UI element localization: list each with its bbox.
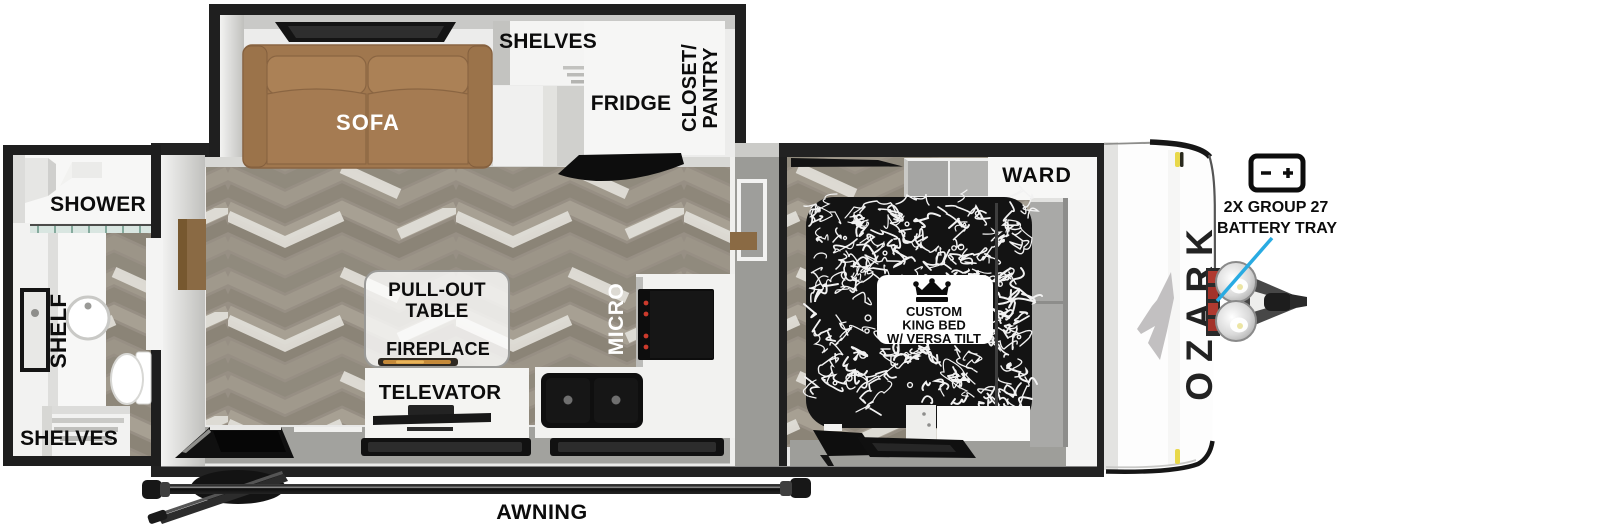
svg-text:SHELVES: SHELVES <box>20 427 118 450</box>
svg-text:WARD: WARD <box>1002 163 1072 187</box>
svg-text:FIREPLACE: FIREPLACE <box>386 339 490 359</box>
svg-text:MICRO: MICRO <box>605 283 628 356</box>
svg-text:CLOSET/: CLOSET/ <box>679 44 701 132</box>
svg-text:PANTRY: PANTRY <box>700 47 722 129</box>
svg-text:TABLE: TABLE <box>406 301 469 322</box>
svg-text:SOFA: SOFA <box>336 110 400 135</box>
svg-text:W/ VERSA TILT: W/ VERSA TILT <box>887 331 981 346</box>
svg-text:2X GROUP 27: 2X GROUP 27 <box>1224 199 1329 216</box>
svg-text:PULL-OUT: PULL-OUT <box>388 280 486 301</box>
svg-text:BATTERY TRAY: BATTERY TRAY <box>1217 220 1337 237</box>
svg-text:SHELVES: SHELVES <box>499 30 597 53</box>
svg-text:TELEVATOR: TELEVATOR <box>379 381 502 404</box>
svg-text:FRIDGE: FRIDGE <box>591 92 672 115</box>
svg-text:SHOWER: SHOWER <box>50 193 146 216</box>
svg-text:AWNING: AWNING <box>496 500 587 524</box>
